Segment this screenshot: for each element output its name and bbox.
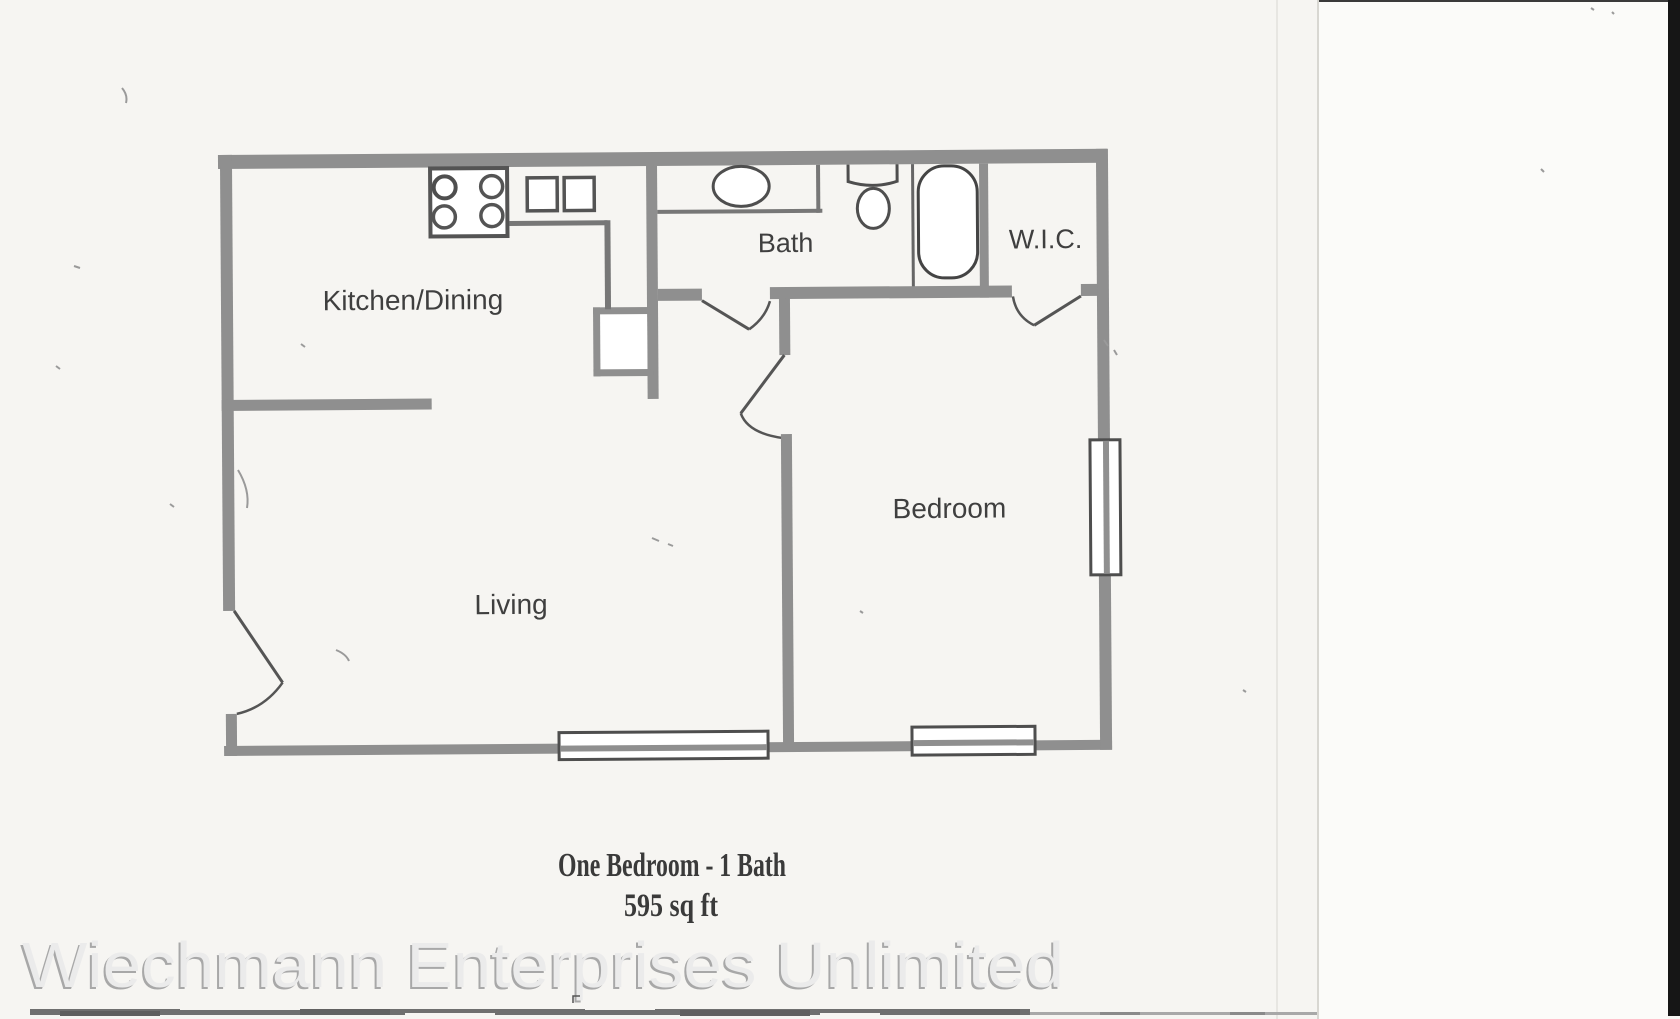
- svg-text:Kitchen/Dining: Kitchen/Dining: [323, 284, 504, 316]
- svg-text:W.I.C.: W.I.C.: [1009, 224, 1083, 255]
- svg-text:One Bedroom - 1 Bath: One Bedroom - 1 Bath: [558, 847, 786, 884]
- svg-text:595 sq ft: 595 sq ft: [624, 888, 718, 924]
- svg-text:Bedroom: Bedroom: [893, 493, 1007, 525]
- svg-text:Wiechmann Enterprises Unlimite: Wiechmann Enterprises Unlimited: [22, 929, 1064, 1001]
- svg-text:Bath: Bath: [758, 228, 814, 258]
- svg-text:Living: Living: [474, 589, 547, 621]
